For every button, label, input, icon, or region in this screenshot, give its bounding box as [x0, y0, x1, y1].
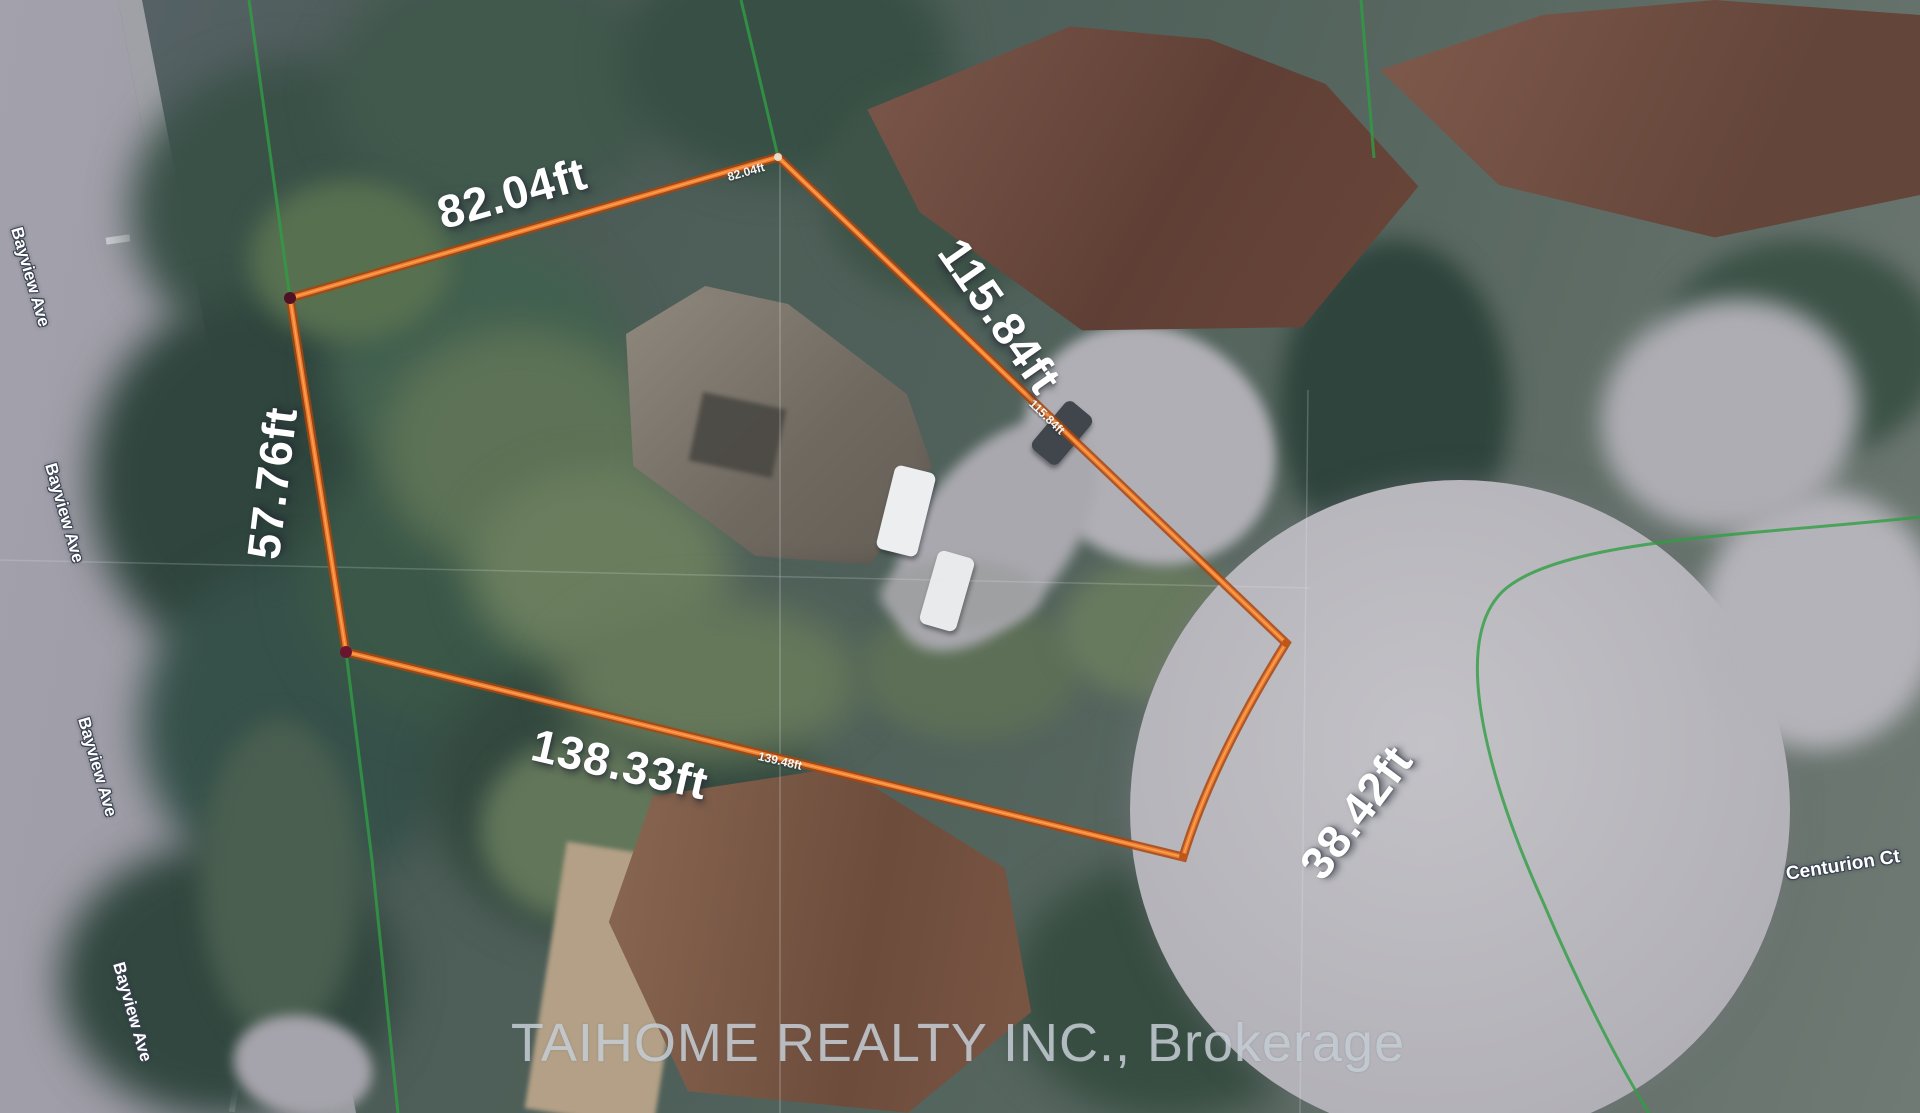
lot-boundary-casing	[290, 157, 1286, 857]
watermark: TAIHOME REALTY INC., Brokerage	[511, 1012, 1405, 1074]
corner-marker	[284, 292, 296, 304]
survey-gridline	[0, 560, 1310, 588]
corner-marker	[1282, 639, 1290, 647]
parcel-line-green-east	[1477, 517, 1920, 1113]
corner-marker	[340, 646, 352, 658]
survey-gridline	[1300, 390, 1308, 1113]
corner-marker	[774, 153, 782, 161]
corner-marker	[1179, 853, 1187, 861]
parcel-line-green-northeast	[1361, 0, 1374, 158]
parcel-line-green-north	[741, 0, 778, 157]
map-canvas[interactable]: 82.04ft 115.84ft 57.76ft 138.33ft 38.42f…	[0, 0, 1920, 1113]
lot-boundary	[290, 157, 1286, 857]
lot-boundary-highlight	[290, 157, 1286, 857]
